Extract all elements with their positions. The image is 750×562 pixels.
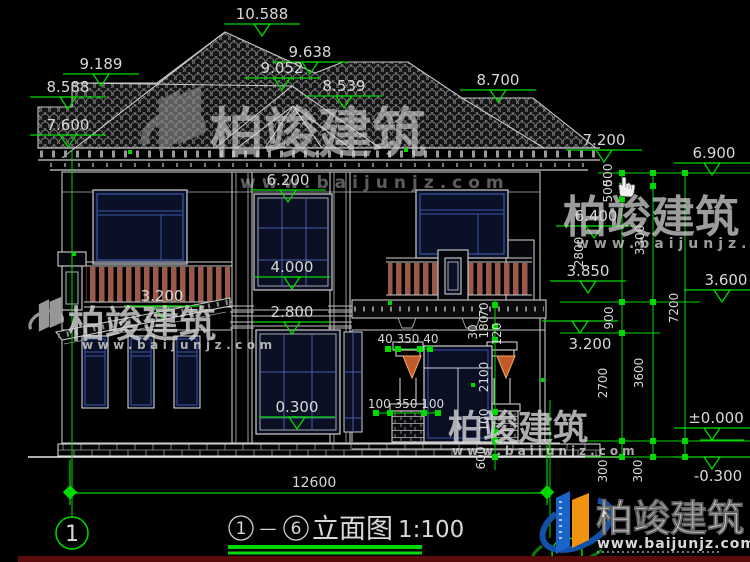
axis-bubble-left-number: 1 [65,522,79,547]
chain-900: 900 [602,307,616,330]
elev-ground: ±0.000 [688,409,744,427]
watermark-roof-url: www.baijunjz.com [240,173,510,193]
window-1f-sidelight [344,332,362,432]
elevation-drawing-canvas: 1 10.588 9.638 9.052 8.539 9.189 8.588 7… [0,0,750,562]
cad-elevation-drawing: 1 10.588 9.638 9.052 8.539 9.189 8.588 7… [0,0,750,562]
title-scale: 1:100 [398,517,464,543]
chain-2700: 2700 [596,368,610,399]
chain-3600: 3600 [632,358,646,389]
title-name: 立面图 [312,514,393,545]
logo-url-text: www.baijunjz.com [597,536,750,552]
logo-brand-text: 柏竣建筑 [596,497,744,540]
chain-7200: 7200 [667,293,681,324]
elev-mid-right: 3.600 [705,271,748,289]
dim-70: 70 [477,302,491,317]
elev-ridge: 10.588 [236,5,289,23]
elev-second-floor: 2.800 [271,303,314,321]
pilaster-left-center [230,172,254,443]
logo-building-blue [556,491,570,554]
balcony-right [386,250,532,302]
hand-cursor-icon [619,177,635,197]
watermark-right-url: www.baijunjz.com [576,236,750,252]
elev-porch-right: 3.200 [569,335,612,353]
dim-total-width: 12600 [292,475,337,491]
elev-right-eave: 7.200 [583,131,626,149]
capital-ornament-left [403,356,421,378]
balcony-right-pedestal [438,250,468,302]
title-axis-end: 6 [291,519,302,539]
canopy-right-porch [352,300,546,328]
dim-120: 120 [490,323,504,346]
elev-window-top: 4.000 [271,258,314,276]
chain-300b: 300 [631,460,645,483]
title-separator: — [260,519,277,539]
elev-left-wing-top: 9.189 [80,55,123,73]
elev-first-sill: 0.300 [276,398,319,416]
watermark-bc-url: www.baijunjz.com [452,444,639,458]
elev-front-hip-low: 8.539 [323,77,366,95]
watermark-bc-brand: 柏竣建筑 [448,408,588,449]
logo-building-orange [572,493,589,548]
drawing-title: 1 — 6 立面图 1:100 [228,514,464,553]
elev-left-eave: 7.600 [47,116,90,134]
window-2f-left [93,190,187,264]
elev-outdoor: -0.300 [694,467,742,485]
dim-door-height: 2100 [477,362,491,393]
chain-300a: 300 [596,460,610,483]
elev-left-wing-eave: 8.588 [47,78,90,96]
watermark-right: 柏竣建筑 www.baijunjz.com [563,192,750,252]
capital-ornament-right [497,356,515,378]
brand-logo: 柏竣建筑 www.baijunjz.com [532,490,750,562]
window-2f-right [416,190,508,258]
dim-30: 30 [466,324,480,339]
porch-column-left [390,342,426,442]
watermark-roof-brand: 柏竣建筑 [210,102,426,165]
title-axis-start: 1 [236,519,247,539]
dim-pedestal: 100 350 100 [368,397,444,411]
elev-front-hip-top: 9.052 [261,59,304,77]
dim-capital: 40 350 40 [377,332,438,346]
elev-right-wing-eave: 8.700 [477,71,520,89]
elev-right-outer-eave: 6.900 [693,144,736,162]
watermark-bottom-center: 柏竣建筑 www.baijunjz.com [448,408,639,458]
watermark-left-url: www.baijunjz.com [82,338,277,352]
bottom-bar [18,556,750,562]
